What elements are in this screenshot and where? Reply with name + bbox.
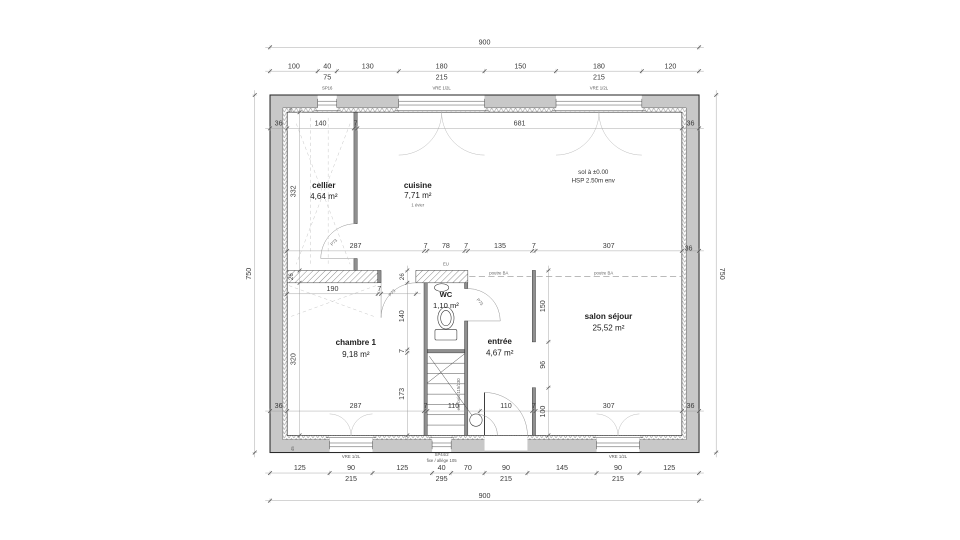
svg-text:140: 140 <box>398 310 406 322</box>
svg-text:130: 130 <box>362 62 374 70</box>
svg-text:215: 215 <box>345 475 357 483</box>
svg-text:150: 150 <box>539 300 547 312</box>
opening-label: VRE 1/2L <box>609 454 628 459</box>
room-entree-area: 4,67 m² <box>486 348 514 357</box>
svg-text:110: 110 <box>448 402 459 410</box>
room-cuisine-name: cuisine <box>404 181 432 190</box>
dim-overall-height: 750 <box>245 268 253 280</box>
svg-text:26: 26 <box>288 273 295 280</box>
svg-text:287: 287 <box>350 402 362 410</box>
dim-overall-width: 900 <box>479 492 491 500</box>
floor-level-note: sol à ±0.00 <box>578 169 609 176</box>
svg-text:215: 215 <box>612 475 624 483</box>
svg-text:100: 100 <box>539 406 547 418</box>
floor-plan-page: poutre BA poutre BA esc bois 115/230 cel… <box>0 0 960 540</box>
svg-text:145: 145 <box>556 464 568 472</box>
svg-text:40: 40 <box>323 62 331 70</box>
svg-text:36: 36 <box>275 402 283 410</box>
svg-text:173: 173 <box>398 388 406 400</box>
svg-text:100: 100 <box>288 62 300 70</box>
room-wc-name: WC <box>440 290 453 299</box>
svg-text:215: 215 <box>436 73 448 81</box>
stair-newel-post <box>470 414 482 426</box>
room-cuisine-area: 7,71 m² <box>404 191 432 200</box>
svg-text:215: 215 <box>500 475 512 483</box>
svg-text:7: 7 <box>424 242 428 250</box>
svg-text:36: 36 <box>685 244 693 252</box>
svg-text:7: 7 <box>532 242 536 250</box>
dim-overall-height: 750 <box>718 268 726 280</box>
svg-text:36: 36 <box>686 120 694 128</box>
beam-label: poutre BA <box>594 271 613 276</box>
floor-plan-drawing: poutre BA poutre BA esc bois 115/230 cel… <box>0 0 960 540</box>
svg-text:135: 135 <box>494 242 506 250</box>
svg-text:150: 150 <box>514 62 526 70</box>
room-cellier-name: cellier <box>312 181 336 190</box>
svg-text:40: 40 <box>438 464 446 472</box>
svg-text:7: 7 <box>424 402 428 410</box>
opening-label: VRE 1/2L <box>342 454 361 459</box>
dim-overall-width: 900 <box>479 38 491 46</box>
svg-text:320: 320 <box>290 353 298 365</box>
svg-text:180: 180 <box>593 62 605 70</box>
svg-text:120: 120 <box>664 62 676 70</box>
beam-line: poutre BA poutre BA <box>469 271 681 277</box>
svg-text:287: 287 <box>350 242 362 250</box>
svg-text:78: 78 <box>442 242 450 250</box>
svg-text:75: 75 <box>323 73 331 81</box>
svg-text:295: 295 <box>436 475 448 483</box>
door-tag: P73 <box>329 237 338 246</box>
room-cuisine-note: 1 évier <box>411 203 424 208</box>
door-tag: P73 <box>476 297 485 307</box>
svg-text:125: 125 <box>396 464 408 472</box>
svg-text:90: 90 <box>614 464 622 472</box>
svg-text:7: 7 <box>377 285 381 293</box>
room-chambre-area: 9,18 m² <box>342 350 370 359</box>
svg-text:7: 7 <box>354 120 358 128</box>
svg-text:215: 215 <box>593 73 605 81</box>
room-salon-area: 25,52 m² <box>592 323 624 332</box>
svg-text:125: 125 <box>663 464 675 472</box>
ceiling-height-note: HSP 2.50m env <box>572 178 616 185</box>
drain-label: EU <box>443 262 449 267</box>
svg-text:26: 26 <box>399 273 406 280</box>
opening-label: SP44/2 <box>435 452 450 457</box>
room-entree-name: entrée <box>488 337 513 346</box>
opening-sublabel: fixe / allège 105 <box>427 458 458 463</box>
room-chambre-name: chambre 1 <box>336 338 377 347</box>
svg-text:90: 90 <box>502 464 510 472</box>
svg-text:140: 140 <box>315 120 327 128</box>
svg-text:7: 7 <box>532 402 536 410</box>
svg-text:36: 36 <box>275 120 283 128</box>
svg-text:7: 7 <box>464 242 468 250</box>
svg-text:7: 7 <box>398 349 406 353</box>
beam-label: poutre BA <box>489 271 508 276</box>
room-salon-name: salon séjour <box>585 312 634 321</box>
staircase: esc bois 115/230 <box>427 354 497 436</box>
svg-text:180: 180 <box>436 62 448 70</box>
corner-tag: 45 <box>290 446 295 451</box>
svg-text:332: 332 <box>290 185 298 197</box>
svg-text:36: 36 <box>686 402 694 410</box>
opening-label: SP16 <box>322 85 333 90</box>
svg-text:110: 110 <box>500 402 511 410</box>
svg-text:307: 307 <box>603 402 615 410</box>
wc-toilet <box>435 307 457 340</box>
svg-text:125: 125 <box>294 464 306 472</box>
svg-text:96: 96 <box>539 361 547 369</box>
corner-tag: 45 <box>288 107 293 112</box>
svg-text:681: 681 <box>514 120 526 128</box>
svg-text:70: 70 <box>464 464 472 472</box>
opening-label: VRE 1/2L <box>432 85 451 90</box>
svg-text:307: 307 <box>603 242 615 250</box>
svg-text:190: 190 <box>327 285 339 293</box>
opening-label: VRE 1/2L <box>590 85 609 90</box>
room-wc-area: 1,10 m² <box>433 301 459 310</box>
svg-text:90: 90 <box>347 464 355 472</box>
room-cellier-area: 4,64 m² <box>310 192 338 201</box>
